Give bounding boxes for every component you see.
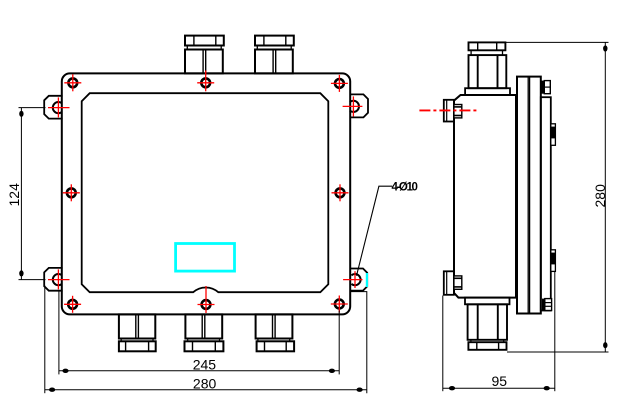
svg-text:280: 280 bbox=[193, 376, 217, 392]
svg-text:4-Ø10: 4-Ø10 bbox=[392, 181, 418, 193]
svg-text:95: 95 bbox=[492, 373, 508, 389]
svg-text:245: 245 bbox=[193, 357, 217, 373]
svg-text:280: 280 bbox=[592, 184, 608, 208]
svg-text:124: 124 bbox=[6, 183, 22, 207]
